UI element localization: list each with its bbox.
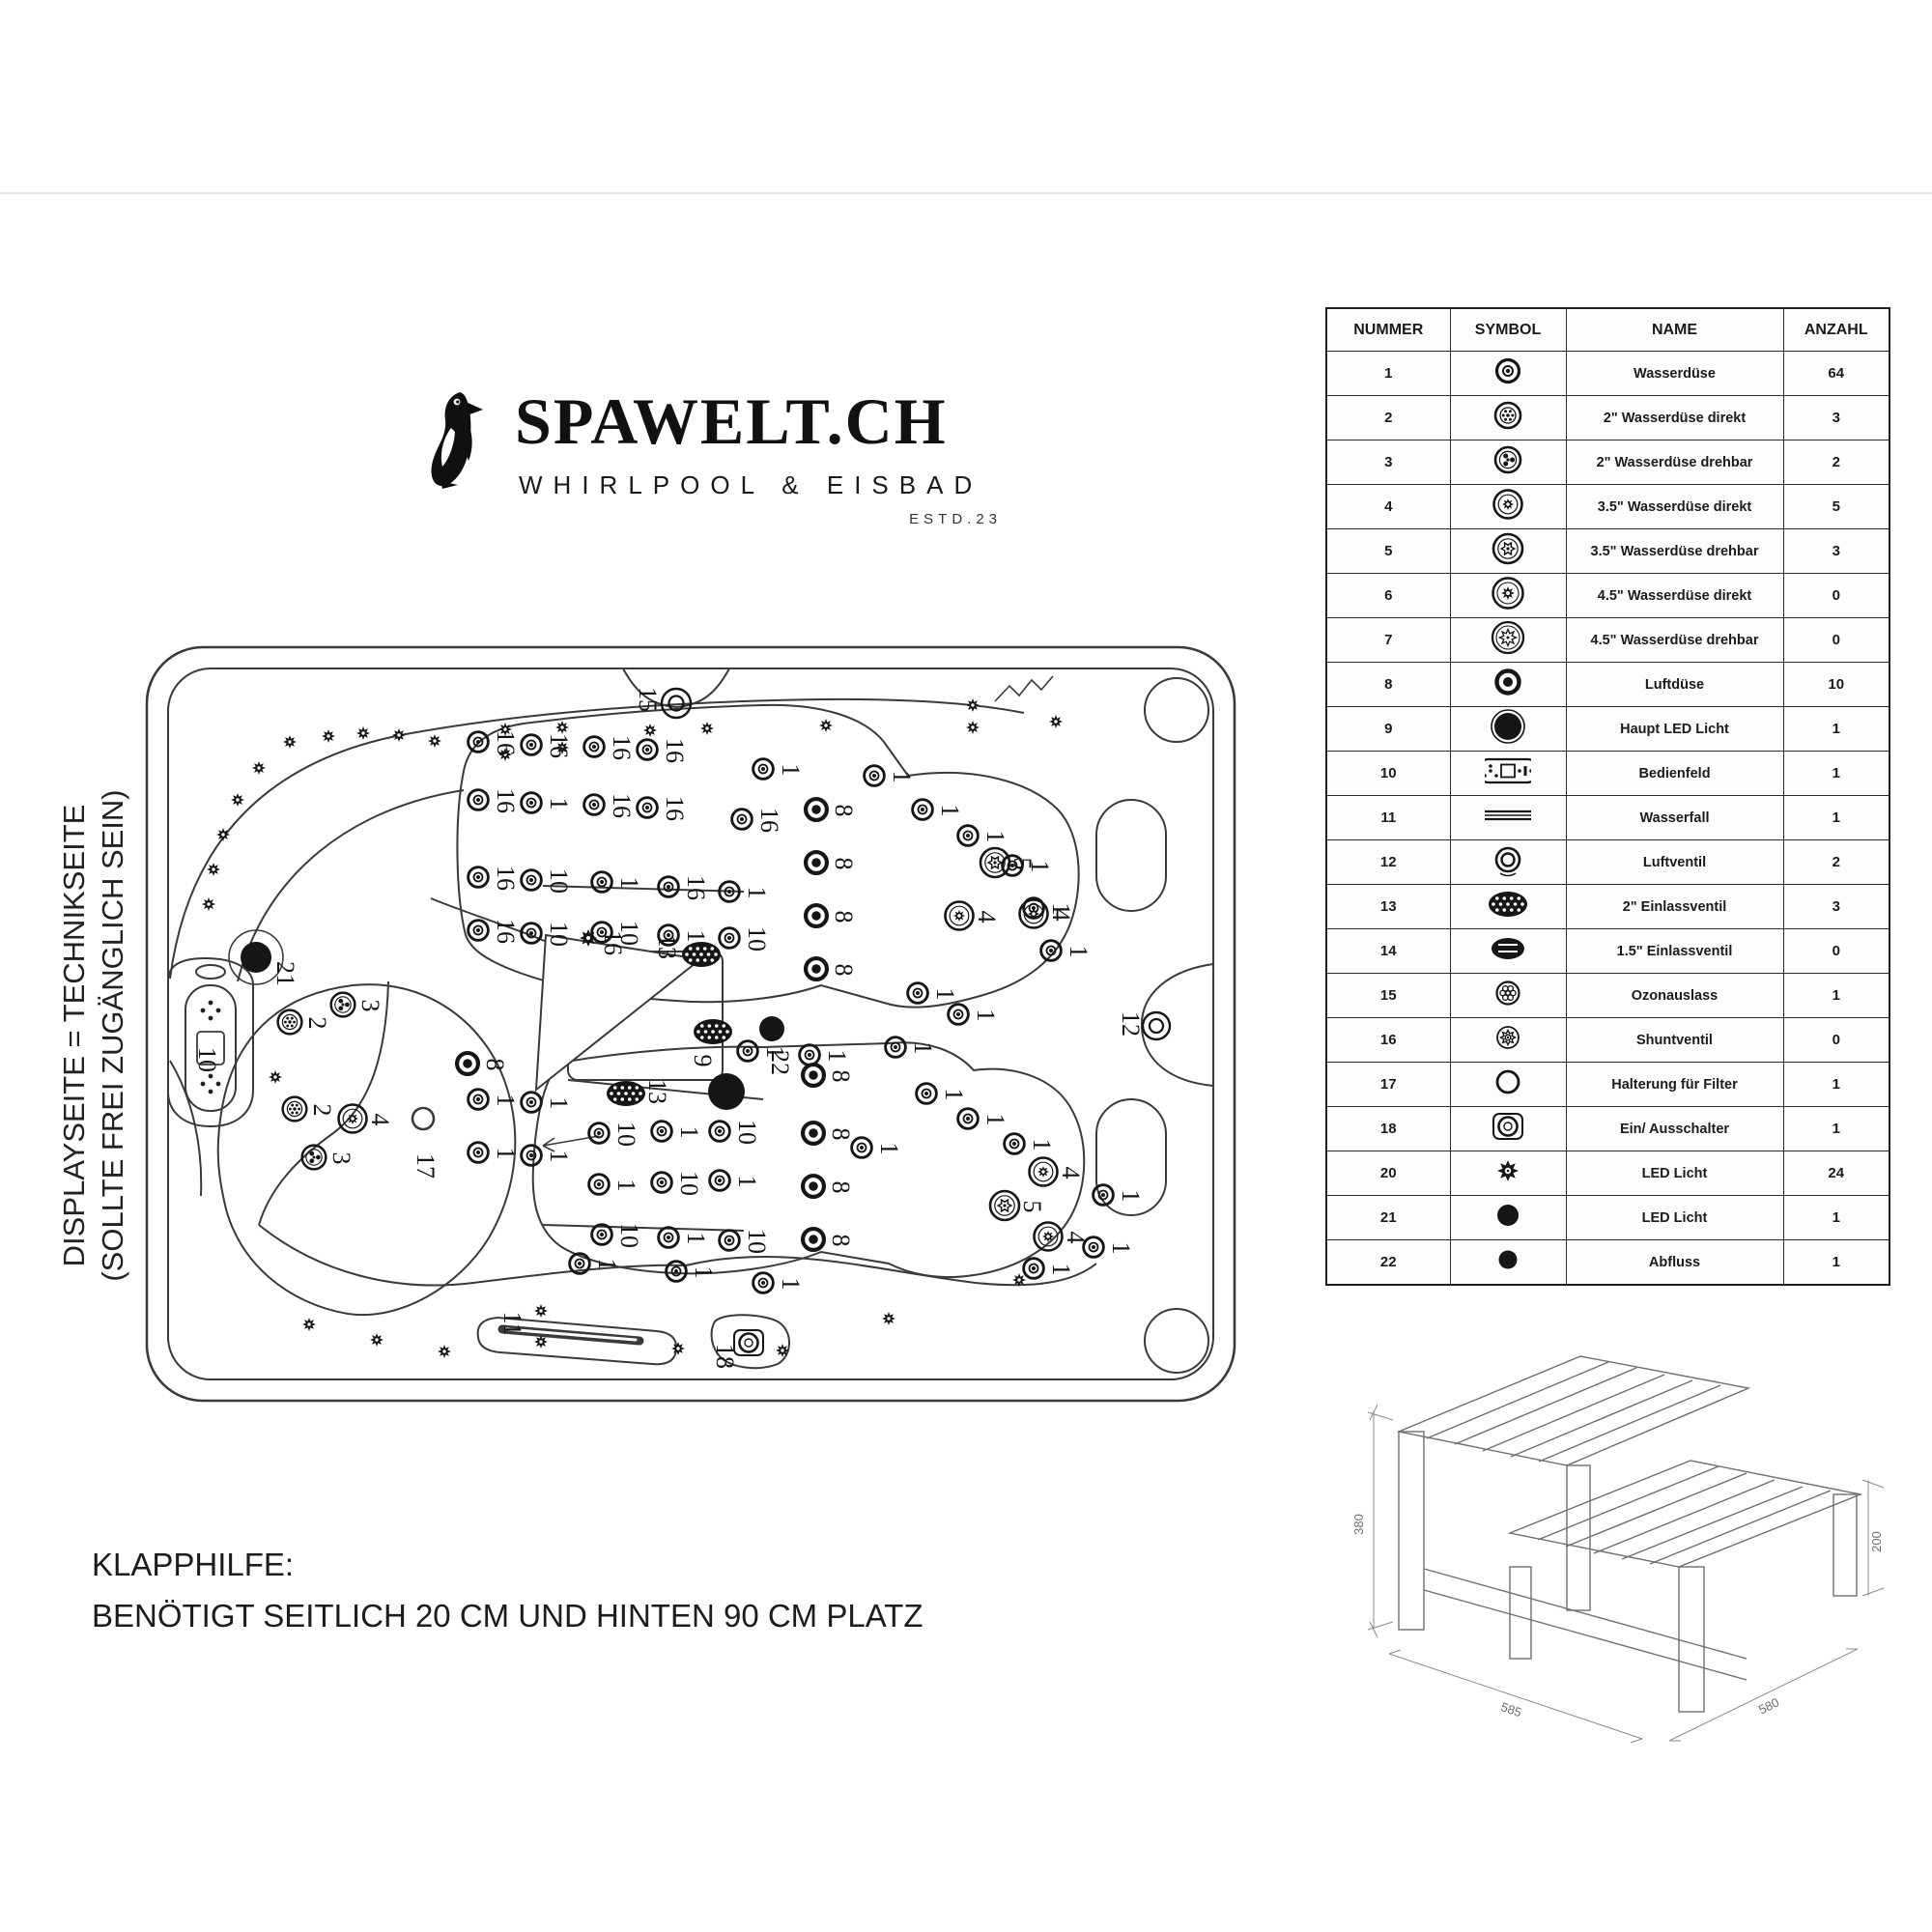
- jet-number-label: 10: [545, 922, 573, 947]
- flower-jet-symbol: [252, 761, 266, 775]
- part-symbol-cell: [1450, 1018, 1566, 1063]
- jet-number-label: 16: [492, 866, 520, 891]
- header-name: NAME: [1566, 308, 1783, 352]
- part-number: 15: [1326, 974, 1450, 1018]
- part-name: Wasserfall: [1566, 796, 1783, 840]
- inlet-valve-symbol: [682, 942, 721, 967]
- jet-number-label: 1: [981, 831, 1009, 843]
- jet-number-label: 8: [827, 1181, 855, 1194]
- flower-jet-symbol: [555, 721, 569, 734]
- jet-number-label: 16: [599, 930, 627, 955]
- parts-table-row: 4 3.5" Wasserdüse direkt 5: [1326, 485, 1889, 529]
- penguin-icon: [411, 389, 499, 490]
- water-jet-symbol: [638, 740, 658, 760]
- part-count: 0: [1783, 1018, 1889, 1063]
- part-number: 17: [1326, 1063, 1450, 1107]
- flower-jet-symbol: [231, 793, 244, 807]
- jet-2-rotate-symbol: [302, 1146, 327, 1170]
- jet-number-label: 16: [545, 733, 573, 758]
- part-symbol-cell: [1450, 1240, 1566, 1286]
- jet-number-label: 16: [492, 788, 520, 813]
- part-count: 3: [1783, 529, 1889, 574]
- part-count: 5: [1783, 485, 1889, 529]
- jet-number-label: 1: [777, 1278, 805, 1291]
- part-number: 22: [1326, 1240, 1450, 1286]
- jet-number-label: 1: [777, 764, 805, 777]
- jet-number-label: 1: [909, 1042, 937, 1055]
- part-number: 3: [1326, 440, 1450, 485]
- part-symbol-cell: [1450, 618, 1566, 663]
- jet-number-label: 13: [653, 934, 681, 959]
- flower-jet-symbol: [269, 1070, 282, 1084]
- jet-number-label: 1: [612, 1179, 640, 1192]
- part-count: 0: [1783, 574, 1889, 618]
- jet-number-label: 4: [1062, 1232, 1090, 1244]
- side-note-line1: DISPLAYSEITE = TECHNIKSEITE: [55, 736, 94, 1335]
- jet-number-label: 16: [661, 738, 689, 763]
- part-name: Haupt LED Licht: [1566, 707, 1783, 752]
- part-count: 1: [1783, 1240, 1889, 1286]
- corner-pocket-bottom-right: [1145, 1309, 1208, 1373]
- water-jet-symbol: [522, 793, 542, 813]
- part-symbol-cell: [1450, 529, 1566, 574]
- part-name: 3.5" Wasserdüse direkt: [1566, 485, 1783, 529]
- jet-number-label: 8: [830, 805, 858, 817]
- shunt-valve-icon: [1485, 1018, 1531, 1057]
- parts-table-row: 13 2" Einlassventil 3: [1326, 885, 1889, 929]
- air-jet-symbol: [806, 905, 827, 926]
- part-symbol-cell: [1450, 1107, 1566, 1151]
- flower-jet-symbol: [370, 1333, 384, 1347]
- water-jet-symbol: [753, 1273, 774, 1293]
- part-symbol-cell: [1450, 440, 1566, 485]
- jet-number-label: 1: [931, 988, 959, 1001]
- air-jet-symbol: [806, 799, 827, 820]
- part-name: Ozonauslass: [1566, 974, 1783, 1018]
- jet-number-label: 16: [608, 793, 636, 818]
- part-name: Ein/ Ausschalter: [1566, 1107, 1783, 1151]
- part-name: Luftdüse: [1566, 663, 1783, 707]
- jet-2-rotate-symbol: [331, 993, 355, 1017]
- part-number: 20: [1326, 1151, 1450, 1196]
- jet-number-label: 10: [545, 868, 573, 894]
- jet-number-label: 1: [545, 798, 573, 810]
- jet-number-label: 8: [827, 1070, 855, 1083]
- jet-number-label: 5: [1018, 1201, 1046, 1213]
- parts-table-row: 8 Luftdüse 10: [1326, 663, 1889, 707]
- water-jet-symbol: [638, 798, 658, 818]
- part-name: LED Licht: [1566, 1151, 1783, 1196]
- water-jet-symbol: [1024, 1259, 1044, 1279]
- water-jet-symbol: [522, 1093, 542, 1113]
- part-number: 1: [1326, 352, 1450, 396]
- parts-table-row: 21 LED Licht 1: [1326, 1196, 1889, 1240]
- stool-dim-step-height: 200: [1869, 1531, 1884, 1552]
- bottom-note-line2: BENÖTIGT SEITLICH 20 CM UND HINTEN 90 CM…: [92, 1590, 923, 1641]
- stool-leg-front-left: [1399, 1432, 1424, 1630]
- water-jet-symbol: [949, 1005, 969, 1025]
- logo: SPAWELT.CH WHIRLPOOL & EISBAD ESTD.23: [411, 382, 1029, 555]
- brand-name: SPAWELT.CH: [515, 384, 948, 460]
- control-panel-icon: [1485, 752, 1531, 790]
- part-number: 6: [1326, 574, 1450, 618]
- parts-table-row: 9 Haupt LED Licht 1: [1326, 707, 1889, 752]
- flower-jet-symbol: [356, 726, 370, 740]
- jet-number-label: 1: [545, 1097, 573, 1110]
- jet-number-label: 1: [743, 887, 771, 899]
- jet-number-label: 5: [1009, 858, 1037, 870]
- flower-jet-symbol: [322, 729, 335, 743]
- flower-jet-symbol: [283, 735, 297, 749]
- stool-dim-width: 580: [1756, 1694, 1781, 1717]
- water-jet-symbol: [958, 826, 979, 846]
- stool-dim-depth: 585: [1499, 1699, 1523, 1719]
- inlet-15in-icon: [1485, 929, 1531, 968]
- jet-number-label: 21: [271, 961, 299, 986]
- side-note-line2: (SOLLTE FREI ZUGÄNGLICH SEIN): [94, 736, 132, 1335]
- parts-table-row: 20 LED Licht 24: [1326, 1151, 1889, 1196]
- part-count: 1: [1783, 974, 1889, 1018]
- air-valve-icon: [1485, 840, 1531, 879]
- side-note: DISPLAYSEITE = TECHNIKSEITE (SOLLTE FREI…: [55, 736, 132, 1335]
- jet-number-label: 1: [682, 1233, 710, 1245]
- part-symbol-cell: [1450, 707, 1566, 752]
- parts-table-row: 17 Halterung für Filter 1: [1326, 1063, 1889, 1107]
- jet-number-label: 10: [675, 1171, 703, 1196]
- water-jet-symbol: [469, 1090, 489, 1110]
- inlet-2in-icon: [1485, 885, 1531, 923]
- part-number: 8: [1326, 663, 1450, 707]
- flower-jet-symbol: [438, 1345, 451, 1358]
- jet-2in-direct-icon: [1485, 396, 1531, 435]
- part-number: 13: [1326, 885, 1450, 929]
- parts-table-row: 11 Wasserfall 1: [1326, 796, 1889, 840]
- part-name: Halterung für Filter: [1566, 1063, 1783, 1107]
- jet-number-label: 16: [492, 730, 520, 755]
- part-name: 4.5" Wasserdüse drehbar: [1566, 618, 1783, 663]
- air-valve-symbol: [1143, 1012, 1170, 1039]
- jet-number-label: 1: [1047, 1264, 1075, 1276]
- water-jet-symbol: [589, 1175, 610, 1195]
- jet-45in-direct-icon: [1485, 574, 1531, 612]
- water-jet-symbol: [522, 1146, 542, 1166]
- part-count: 24: [1783, 1151, 1889, 1196]
- air-jet-symbol: [806, 958, 827, 980]
- brand-tagline: WHIRLPOOL & EISBAD: [519, 470, 1007, 500]
- water-jet-symbol: [652, 1173, 672, 1193]
- jet-number-label: 2: [308, 1104, 336, 1117]
- part-name: Wasserdüse: [1566, 352, 1783, 396]
- stool-bottom-step: [1510, 1461, 1861, 1712]
- part-name: Bedienfeld: [1566, 752, 1783, 796]
- jet-number-label: 1: [940, 1089, 968, 1101]
- led21-symbol: [241, 942, 271, 973]
- water-jet-symbol: [738, 1041, 758, 1062]
- jet-number-label: 17: [412, 1153, 440, 1179]
- part-symbol-cell: [1450, 752, 1566, 796]
- part-symbol-cell: [1450, 352, 1566, 396]
- jet-number-label: 4: [1047, 909, 1075, 922]
- part-count: 0: [1783, 929, 1889, 974]
- jet-number-label: 11: [498, 1311, 526, 1335]
- part-symbol-cell: [1450, 796, 1566, 840]
- jets-layer: 1616161161616161610161011611011011611111…: [193, 687, 1170, 1369]
- led22-symbol: [759, 1016, 784, 1041]
- filter-holder-icon: [1485, 1063, 1531, 1101]
- filter-area-outline: [218, 984, 516, 1315]
- part-name: 3.5" Wasserdüse drehbar: [1566, 529, 1783, 574]
- part-name: Abfluss: [1566, 1240, 1783, 1286]
- water-jet-symbol: [720, 1231, 740, 1251]
- part-count: 1: [1783, 707, 1889, 752]
- water-jet-symbol: [522, 870, 542, 891]
- part-symbol-cell: [1450, 1063, 1566, 1107]
- part-count: 2: [1783, 440, 1889, 485]
- water-jet-symbol: [1005, 1134, 1025, 1154]
- water-jet-symbol: [710, 1171, 730, 1191]
- jet-number-label: 9: [689, 1055, 717, 1067]
- jet-number-label: 12: [1117, 1011, 1145, 1037]
- zigzag-detail: [995, 676, 1053, 701]
- jet-number-label: 4: [366, 1114, 394, 1126]
- jet-number-label: 1: [545, 1151, 573, 1163]
- flower-jet-symbol: [392, 728, 406, 742]
- header-nummer: NUMMER: [1326, 308, 1450, 352]
- flower-jet-symbol: [966, 721, 980, 734]
- part-symbol-cell: [1450, 974, 1566, 1018]
- water-jet-symbol: [469, 867, 489, 888]
- jet-number-label: 1: [675, 1126, 703, 1139]
- part-count: 1: [1783, 1107, 1889, 1151]
- jet-number-label: 1: [972, 1009, 1000, 1022]
- hot-tub-diagram: 1616161161616161610161011611011011611111…: [145, 645, 1236, 1403]
- water-jet-symbol: [913, 800, 933, 820]
- jet-2-direct-symbol: [278, 1010, 302, 1035]
- stool-dim-height: 380: [1351, 1514, 1366, 1535]
- parts-table-row: 5 3.5" Wasserdüse drehbar 3: [1326, 529, 1889, 574]
- water-jet-symbol: [469, 1143, 489, 1163]
- water-jet-symbol: [584, 795, 605, 815]
- jet-number-label: 16: [608, 735, 636, 760]
- part-number: 12: [1326, 840, 1450, 885]
- part-name: Luftventil: [1566, 840, 1783, 885]
- water-jet-symbol: [732, 810, 753, 830]
- jet-2-direct-symbol: [283, 1097, 307, 1122]
- stool-leg-front-right: [1679, 1567, 1704, 1712]
- bench-outer-curve: [170, 699, 1024, 979]
- flower-jet-symbol: [534, 1304, 548, 1318]
- jet-35-direct-symbol: [1035, 1223, 1063, 1251]
- air-jet-icon: [1485, 663, 1531, 701]
- part-count: 1: [1783, 1063, 1889, 1107]
- part-symbol-cell: [1450, 929, 1566, 974]
- jet-water-icon: [1485, 352, 1531, 390]
- jet-35-direct-symbol: [339, 1105, 367, 1133]
- jet-number-label: 1: [593, 1259, 621, 1271]
- jet-number-label: 1: [1117, 1190, 1145, 1203]
- ozone-gear-symbol: [580, 929, 597, 947]
- bottom-note-line1: KLAPPHILFE:: [92, 1539, 923, 1590]
- water-jet-symbol: [908, 983, 928, 1004]
- parts-table-row: 12 Luftventil 2: [1326, 840, 1889, 885]
- water-jet-symbol: [667, 1262, 687, 1282]
- part-symbol-cell: [1450, 1196, 1566, 1240]
- jet-number-label: 2: [303, 1017, 331, 1030]
- jet-number-label: 3: [327, 1152, 355, 1165]
- jet-number-label: 1: [981, 1114, 1009, 1126]
- jet-number-label: 10: [733, 1120, 761, 1145]
- jet-number-label: 22: [766, 1050, 794, 1075]
- water-jet-symbol: [469, 921, 489, 941]
- jet-35-direct-symbol: [1030, 1158, 1058, 1186]
- stool-leg-mid: [1510, 1567, 1531, 1659]
- step-stool-drawing: 380 200 585 580: [1331, 1335, 1891, 1750]
- parts-table-row: 10 Bedienfeld 1: [1326, 752, 1889, 796]
- led9-symbol: [708, 1073, 745, 1110]
- headrest-pocket-upper: [1096, 800, 1166, 911]
- jet-number-label: 4: [973, 911, 1001, 923]
- part-name: Shuntventil: [1566, 1018, 1783, 1063]
- part-number: 10: [1326, 752, 1450, 796]
- stool-top-step: [1399, 1356, 1748, 1680]
- water-jet-symbol: [469, 790, 489, 810]
- jet-35in-rotate-icon: [1485, 529, 1531, 568]
- water-jet-symbol: [753, 759, 774, 780]
- air-jet-symbol: [803, 1122, 824, 1144]
- part-count: 2: [1783, 840, 1889, 885]
- water-jet-symbol: [469, 732, 489, 753]
- waterfall-icon: [1485, 796, 1531, 835]
- part-number: 4: [1326, 485, 1450, 529]
- water-jet-symbol: [584, 737, 605, 757]
- part-symbol-cell: [1450, 396, 1566, 440]
- part-name: 1.5" Einlassventil: [1566, 929, 1783, 974]
- parts-table-row: 15 Ozonauslass 1: [1326, 974, 1889, 1018]
- ozone-cluster-icon: [1485, 974, 1531, 1012]
- air-jet-symbol: [806, 852, 827, 873]
- part-number: 18: [1326, 1107, 1450, 1151]
- part-symbol-cell: [1450, 485, 1566, 529]
- corner-pocket-top-right: [1145, 678, 1208, 742]
- air-valve-pocket-right: [1142, 964, 1213, 1086]
- part-number: 5: [1326, 529, 1450, 574]
- main-led-icon: [1485, 707, 1531, 746]
- air-jet-symbol: [457, 1053, 478, 1074]
- water-jet-symbol: [720, 928, 740, 949]
- parts-table-row: 6 4.5" Wasserdüse direkt 0: [1326, 574, 1889, 618]
- parts-table: NUMMER SYMBOL NAME ANZAHL 1 Wasserdüse 6…: [1325, 307, 1890, 1286]
- jet-number-label: 8: [481, 1059, 509, 1071]
- jet-35-direct-symbol: [946, 902, 974, 930]
- jet-number-label: 10: [193, 1047, 221, 1072]
- jet-number-label: 10: [612, 1122, 640, 1147]
- part-name: 2" Wasserdüse direkt: [1566, 396, 1783, 440]
- led-light-icon: [1485, 1151, 1531, 1190]
- jet-number-label: 10: [615, 1223, 643, 1248]
- brand-estd: ESTD.23: [519, 511, 1002, 527]
- water-jet-symbol: [886, 1037, 906, 1058]
- control-panel-top-oval: [196, 965, 225, 979]
- control-panel-pocket: [168, 958, 253, 1126]
- jet-number-label: 15: [634, 687, 662, 712]
- flower-jet-symbol: [202, 897, 215, 911]
- parts-table-row: 22 Abfluss 1: [1326, 1240, 1889, 1286]
- part-symbol-cell: [1450, 663, 1566, 707]
- water-jet-symbol: [659, 877, 679, 897]
- header-symbol: SYMBOL: [1450, 308, 1566, 352]
- air-jet-symbol: [803, 1065, 824, 1086]
- water-jet-symbol: [958, 1109, 979, 1129]
- jet-number-label: 1: [690, 1266, 718, 1279]
- parts-table-row: 2 2" Wasserdüse direkt 3: [1326, 396, 1889, 440]
- jet-number-label: 1: [875, 1143, 903, 1155]
- bench-inner-curve: [238, 790, 464, 981]
- flower-jet-symbol: [643, 724, 657, 737]
- jet-number-label: 8: [830, 964, 858, 977]
- water-jet-symbol: [852, 1138, 872, 1158]
- water-jet-symbol: [1041, 941, 1062, 961]
- part-count: 0: [1783, 618, 1889, 663]
- flower-jet-symbol: [700, 722, 714, 735]
- flower-jet-symbol: [207, 863, 220, 876]
- parts-table-row: 16 Shuntventil 0: [1326, 1018, 1889, 1063]
- filter-holder-circle: [412, 1108, 434, 1129]
- inlet-valve-symbol: [607, 1081, 645, 1106]
- page: { "logo": { "brand": "SPAWELT.CH", "tagl…: [0, 0, 1932, 1932]
- water-jet-symbol: [800, 1045, 820, 1065]
- jet-35-rotate-symbol: [980, 848, 1009, 877]
- jet-35in-direct-icon: [1485, 485, 1531, 524]
- jet-45in-rotate-icon: [1485, 618, 1531, 657]
- jet-number-label: 16: [755, 808, 783, 833]
- parts-table-body: 1 Wasserdüse 642 2" Wasserdüse direkt 33…: [1326, 352, 1889, 1286]
- jet-number-label: 1: [492, 1094, 520, 1107]
- parts-table-row: 1 Wasserdüse 64: [1326, 352, 1889, 396]
- flower-jet-symbol: [819, 719, 833, 732]
- jet-number-label: 13: [643, 1079, 671, 1104]
- bottom-note: KLAPPHILFE: BENÖTIGT SEITLICH 20 CM UND …: [92, 1539, 923, 1641]
- part-symbol-cell: [1450, 1151, 1566, 1196]
- water-jet-symbol: [652, 1122, 672, 1142]
- inlet-valve-symbol: [694, 1019, 732, 1044]
- part-count: 10: [1783, 663, 1889, 707]
- water-jet-symbol: [592, 872, 612, 893]
- jet-number-label: 1: [492, 1148, 520, 1160]
- part-count: 1: [1783, 796, 1889, 840]
- bottom-bench-curve2: [686, 1257, 1096, 1285]
- part-count: 1: [1783, 752, 1889, 796]
- flower-jet-symbol: [428, 734, 441, 748]
- parts-table-header-row: NUMMER SYMBOL NAME ANZAHL: [1326, 308, 1889, 352]
- jet-number-label: 8: [830, 858, 858, 870]
- water-jet-symbol: [865, 766, 885, 786]
- water-jet-symbol: [589, 1123, 610, 1144]
- page-top-divider: [0, 192, 1932, 194]
- jet-number-label: 1: [733, 1176, 761, 1188]
- parts-table-row: 18 Ein/ Ausschalter 1: [1326, 1107, 1889, 1151]
- jet-35-rotate-symbol: [990, 1191, 1019, 1220]
- flower-jet-symbol: [966, 698, 980, 712]
- jet-35-direct-symbol: [1020, 900, 1048, 928]
- drain-icon: [1485, 1240, 1531, 1279]
- stool-dimension-lines: [1368, 1405, 1884, 1743]
- jet-number-label: 1: [615, 877, 643, 890]
- jet-number-label: 1: [888, 771, 916, 783]
- part-number: 11: [1326, 796, 1450, 840]
- jet-number-label: 1: [936, 805, 964, 817]
- jet-2in-rotate-icon: [1485, 440, 1531, 479]
- jet-number-label: 4: [1057, 1167, 1085, 1179]
